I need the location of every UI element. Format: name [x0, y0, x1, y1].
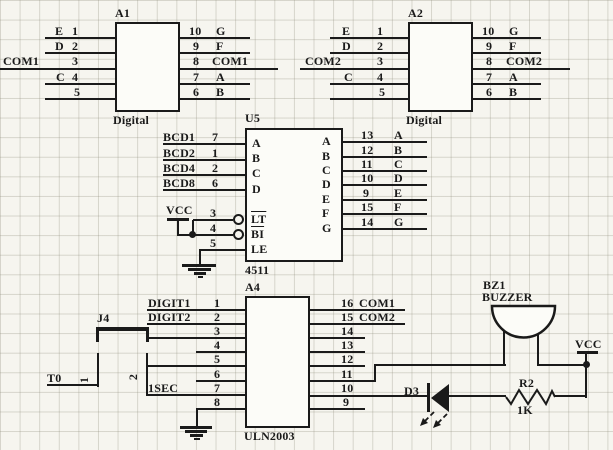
a4-pin-num: 9	[343, 396, 349, 408]
j4-header-leg	[96, 327, 99, 342]
wire	[308, 351, 365, 353]
a1-pin-name: COM1	[3, 55, 39, 67]
wire	[308, 408, 365, 410]
ground-symbol	[185, 430, 207, 433]
wire	[178, 234, 233, 236]
a2-pin-name: A	[509, 71, 518, 83]
vcc-label: VCC	[575, 338, 602, 350]
wire-seg-e	[341, 199, 427, 201]
u5-inner-le: LE	[251, 243, 267, 255]
ground-symbol	[194, 438, 200, 440]
wire	[147, 365, 247, 367]
u5-inner: E	[322, 193, 330, 205]
wire	[178, 83, 250, 85]
inverter-bubble	[233, 229, 244, 240]
wire	[471, 83, 541, 85]
a2-pin-name: COM2	[305, 55, 341, 67]
a1-pin-num: 4	[72, 71, 78, 83]
a2-type: Digital	[406, 114, 442, 126]
ground-symbol	[190, 434, 203, 437]
ground-symbol	[180, 426, 212, 429]
wire	[539, 364, 589, 366]
u5-pin-name: F	[394, 201, 402, 213]
bz1-type: BUZZER	[482, 291, 533, 303]
wire-seg-b	[341, 156, 427, 158]
u5-inner: A	[252, 137, 261, 149]
ground-symbol	[194, 272, 206, 275]
a4-pin-name: DIGIT1	[148, 297, 191, 309]
wire	[330, 83, 410, 85]
a4-pin-num: 1	[214, 297, 220, 309]
a4-pin-num: 2	[214, 311, 220, 323]
buzzer-dome[interactable]	[492, 306, 555, 338]
u5-ref: U5	[245, 112, 260, 124]
a2-pin-name: E	[342, 25, 350, 37]
a4-pin-num: 3	[214, 325, 220, 337]
u5-inner: B	[322, 150, 330, 162]
u5-pin-num: 13	[361, 129, 373, 141]
a1-pin-name: A	[216, 71, 225, 83]
a2-pin-name: C	[344, 71, 353, 83]
u5-inner: D	[322, 178, 331, 190]
a1-ref: A1	[115, 7, 130, 19]
wire-t0	[47, 384, 99, 386]
u5-pin-name: BCD1	[163, 131, 195, 143]
a1-pin-num: 8	[193, 55, 199, 67]
u5-inner-bi: BI	[251, 228, 264, 240]
a2-pin-name: G	[509, 25, 519, 37]
a4-ref: A4	[245, 281, 260, 293]
u5-inner-lt: LT	[251, 213, 266, 225]
junction-dot	[189, 231, 196, 238]
led-triangle[interactable]	[431, 384, 449, 412]
ground-symbol	[198, 276, 203, 278]
u5-pin-num: 5	[210, 237, 216, 249]
a2-pin-num: 4	[377, 71, 383, 83]
a1-pin-num: 7	[193, 71, 199, 83]
r2-value: 1K	[517, 404, 533, 416]
u5-pin-num: 3	[210, 207, 216, 219]
resistor-zigzag[interactable]	[506, 390, 555, 404]
a4-body[interactable]	[245, 296, 310, 428]
a4-pin-num: 7	[214, 382, 220, 394]
buzzer-lead	[537, 333, 539, 366]
a2-pin-num: 8	[486, 55, 492, 67]
j4-pin1-num: 1	[78, 377, 90, 383]
u5-pin-name: A	[394, 129, 403, 141]
wire	[448, 395, 506, 397]
a2-pin-name: COM2	[506, 55, 542, 67]
a2-pin-name: D	[342, 40, 351, 52]
schematic: A1 Digital E 1 D 2 COM1 3 C 4 5 10 G 9 F…	[0, 0, 613, 450]
a2-pin-num: 6	[486, 86, 492, 98]
a1-type: Digital	[113, 114, 149, 126]
wire-seg-c	[341, 170, 427, 172]
a1-pin-name: B	[216, 86, 224, 98]
vcc-bar	[577, 351, 598, 354]
a4-pin-num: 8	[214, 396, 220, 408]
a4-pin-name: DIGIT2	[148, 311, 191, 323]
a2-pin-name: F	[509, 40, 517, 52]
j4-pin2-lead	[146, 353, 148, 396]
a1-pin-name: E	[55, 25, 63, 37]
wire-seg-a	[341, 141, 427, 143]
u5-inner: D	[252, 183, 261, 195]
vcc-label: VCC	[166, 204, 193, 216]
wire	[196, 408, 198, 427]
a4-pin-num: 16	[341, 297, 353, 309]
wire-seg-d	[341, 184, 427, 186]
u5-pin-num: 7	[212, 131, 218, 143]
r2-ref: R2	[519, 377, 534, 389]
a1-body[interactable]	[115, 22, 180, 112]
a2-body[interactable]	[408, 22, 473, 112]
u5-pin-name: B	[394, 144, 402, 156]
wire	[330, 98, 410, 100]
wire	[200, 249, 247, 251]
ground-symbol	[182, 264, 216, 267]
j4-header-bar[interactable]	[96, 327, 149, 331]
a1-pin-name: COM1	[212, 55, 248, 67]
a2-pin-num: 9	[486, 40, 492, 52]
a1-pin-name: D	[55, 40, 64, 52]
j4-pin2-num: 2	[127, 374, 139, 380]
a2-pin-num: 2	[377, 40, 383, 52]
a2-pin-num: 7	[486, 71, 492, 83]
u5-pin-name: BCD8	[163, 177, 195, 189]
a1-pin-num: 6	[193, 86, 199, 98]
wire	[147, 337, 247, 339]
wire	[374, 364, 376, 382]
a2-ref: A2	[408, 7, 423, 19]
u5-part: 4511	[245, 264, 269, 276]
buzzer-lead	[503, 329, 505, 366]
u5-pin-num: 11	[361, 158, 373, 170]
a1-pin-name: C	[56, 71, 65, 83]
j4-ref: J4	[97, 312, 109, 324]
a4-pin-num: 5	[214, 353, 220, 365]
wire	[554, 395, 587, 397]
a4-pin-num: 15	[341, 311, 353, 323]
u5-inner: C	[252, 167, 261, 179]
u5-pin-num: 6	[212, 177, 218, 189]
a4-pin-name: COM1	[359, 297, 395, 309]
a4-pin-name: COM2	[359, 311, 395, 323]
ground-symbol	[188, 268, 211, 271]
a2-pin-num: 3	[377, 55, 383, 67]
u5-inner: C	[322, 164, 331, 176]
a4-pin-num: 6	[214, 368, 220, 380]
a1-pin-num: 3	[72, 55, 78, 67]
wire	[196, 351, 247, 353]
u5-pin-num: 12	[361, 144, 373, 156]
a2-pin-name: B	[509, 86, 517, 98]
u5-inner: G	[322, 222, 332, 234]
u5-pin-num: 4	[210, 222, 216, 234]
u5-pin-name: E	[394, 187, 402, 199]
u5-inner: A	[322, 135, 331, 147]
wire-seg-g	[341, 228, 427, 230]
wire-com2	[300, 68, 410, 70]
a1-pin-name: G	[216, 25, 226, 37]
u5-pin-num: 15	[361, 201, 373, 213]
a2-pin-num: 5	[379, 86, 385, 98]
wire	[471, 98, 541, 100]
a1-pin-name: F	[216, 40, 224, 52]
wire	[196, 408, 247, 410]
d3-ref: D3	[404, 385, 419, 397]
a4-pin-num: 14	[341, 325, 353, 337]
wire	[177, 220, 179, 236]
u5-pin-num: 1	[212, 147, 218, 159]
a1-pin-num: 5	[74, 86, 80, 98]
u5-pin-num: 10	[361, 172, 373, 184]
wire	[196, 380, 247, 382]
j4-header-leg	[146, 327, 149, 342]
a2-pin-num: 10	[482, 25, 494, 37]
u5-inner: F	[322, 207, 330, 219]
u5-pin-num: 14	[361, 216, 373, 228]
a4-pin-num: 10	[341, 382, 353, 394]
u5-pin-name: C	[394, 158, 403, 170]
wire-buzzer	[374, 364, 506, 366]
u5-inner: B	[252, 152, 260, 164]
a4-part: ULN2003	[244, 430, 295, 442]
led-light-arrows	[420, 412, 447, 428]
a4-pin-num: 4	[214, 339, 220, 351]
a1-pin-num: 1	[72, 25, 78, 37]
u5-pin-num: 9	[363, 187, 369, 199]
wire	[178, 98, 250, 100]
u5-pin-name: BCD2	[163, 147, 195, 159]
a1-pin-num: 10	[189, 25, 201, 37]
a1-pin-num: 2	[72, 40, 78, 52]
a1-pin-num: 9	[193, 40, 199, 52]
a4-pin-name: 1SEC	[148, 382, 178, 394]
j4-pin1-lead	[97, 353, 99, 387]
u5-pin-name: G	[394, 216, 404, 228]
u5-pin-name: D	[394, 172, 403, 184]
wire	[45, 98, 117, 100]
wire	[308, 337, 365, 339]
wire-seg-f	[341, 213, 427, 215]
u5-pin-name: BCD4	[163, 162, 195, 174]
wire	[199, 249, 201, 265]
a4-pin-num: 12	[341, 353, 353, 365]
t0-net-label: T0	[47, 372, 61, 384]
u5-pin-num: 2	[212, 162, 218, 174]
a4-pin-num: 11	[341, 368, 353, 380]
a2-pin-num: 1	[377, 25, 383, 37]
a4-pin-num: 13	[341, 339, 353, 351]
wire	[308, 365, 365, 367]
inverter-bubble	[233, 214, 244, 225]
wire	[585, 353, 587, 398]
